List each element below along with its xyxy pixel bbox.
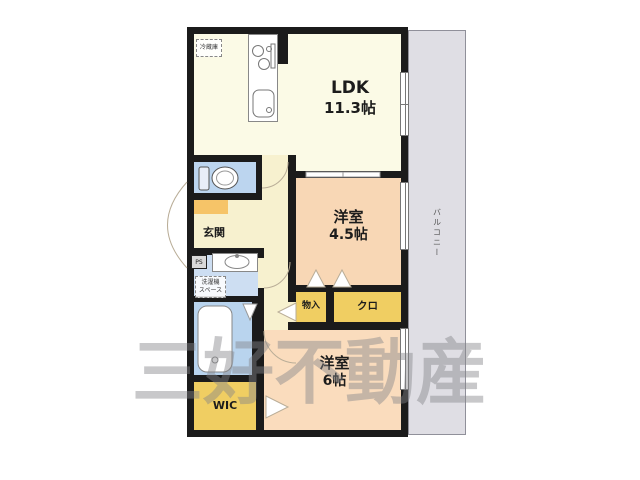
storage-door-opening — [288, 302, 296, 322]
bedroom6-name: 洋室 — [319, 354, 349, 373]
balcony-label: バルコニー — [432, 208, 443, 258]
storage-label-text: 物入 — [302, 301, 320, 312]
entrance-door-arc — [168, 182, 188, 268]
washbasin-counter — [212, 253, 258, 272]
room-bathroom — [194, 302, 252, 375]
washroom-door-opening — [258, 258, 264, 288]
ldk-label: LDK 11.3帖 — [300, 76, 400, 120]
storage-label: 物入 — [296, 292, 326, 322]
bedroom6-label: 洋室 6帖 — [268, 350, 401, 394]
kitchen-wall-stub — [278, 34, 288, 64]
room-ldk-extension — [296, 155, 401, 171]
washer-space-label-line2: スペース — [199, 287, 222, 295]
floorplan-canvas: バルコニー 冷蔵庫 PS 洗濯機 スペース LDK 11.3帖 洋室 4.5帖 — [0, 0, 640, 480]
wic-label-text: WIC — [213, 399, 237, 413]
bedroom6-size: 6帖 — [323, 373, 347, 391]
washer-space-box: 洗濯機 スペース — [195, 276, 226, 298]
closet-label: クロ — [334, 292, 401, 322]
closet-label-text: クロ — [357, 300, 378, 313]
hallway-lower — [264, 248, 288, 330]
bedroom45-name: 洋室 — [333, 208, 363, 227]
kitchen-counter — [248, 34, 278, 122]
balcony-area: バルコニー — [408, 30, 466, 435]
ldk-window-lower — [400, 104, 409, 136]
entrance-step — [194, 200, 228, 214]
bedroom45-label: 洋室 4.5帖 — [300, 205, 397, 247]
pipe-space-label: PS — [195, 259, 202, 266]
hallway-upper — [262, 162, 288, 200]
refrigerator-space: 冷蔵庫 — [196, 39, 222, 57]
entrance-label: 玄関 — [192, 225, 236, 241]
washer-space-label-line1: 洗濯機 — [201, 279, 219, 287]
ldk-name: LDK — [331, 78, 369, 99]
refrigerator-label: 冷蔵庫 — [200, 44, 218, 52]
ldk-size: 11.3帖 — [324, 99, 376, 118]
bedroom45-size: 4.5帖 — [329, 227, 368, 245]
entrance-label-text: 玄関 — [203, 226, 225, 240]
ldk-hall-door-opening — [262, 155, 288, 162]
bedroom45-window — [400, 182, 409, 250]
pipe-space-box: PS — [191, 255, 207, 269]
ldk-window-upper — [400, 72, 409, 105]
wic-label: WIC — [194, 382, 256, 430]
bedroom6-window — [400, 328, 409, 390]
room-toilet — [194, 162, 256, 193]
